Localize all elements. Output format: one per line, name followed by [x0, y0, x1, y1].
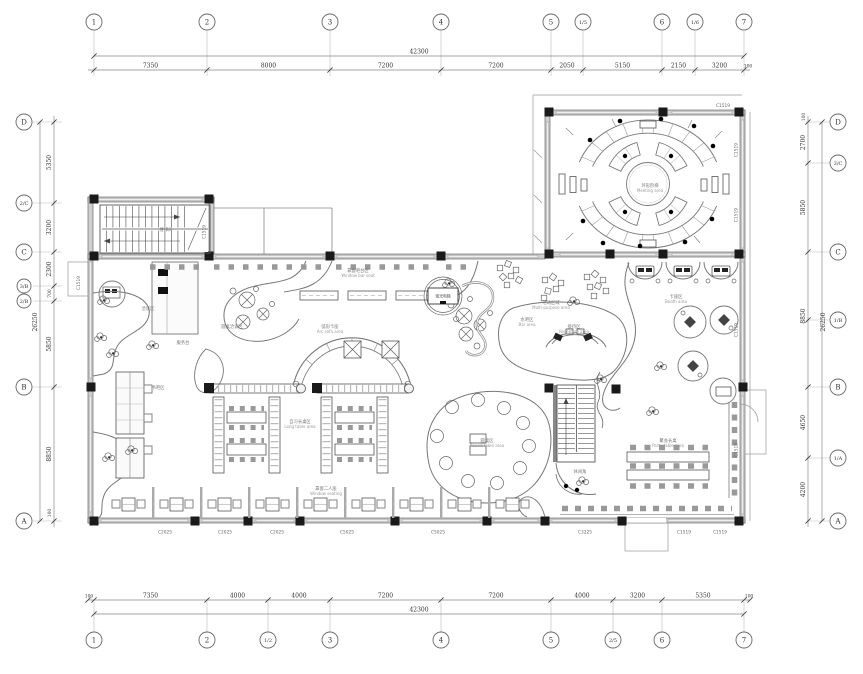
room-label: 书吧区 [152, 384, 166, 391]
dim-label: 3200 [712, 63, 727, 70]
svg-text:2: 2 [205, 19, 209, 27]
dim-label: 4000 [291, 593, 306, 600]
dim-total-bottom: 42300 [409, 607, 428, 614]
svg-text:D: D [21, 119, 27, 127]
floor-plan-page: 42300 7350 8000 7200 7200 2050 5150 2150… [0, 0, 863, 674]
svg-text:C: C [835, 249, 840, 257]
dim-label: 7200 [488, 63, 503, 70]
window-label: C1519 [734, 323, 740, 337]
svg-text:2/C: 2/C [20, 201, 29, 207]
dim-label: 2150 [671, 63, 686, 70]
window-label: C5025 [431, 530, 445, 536]
dimension-band-right: 26250 100 2700 5850 8850 4650 4200 D 3/C… [800, 113, 846, 529]
room-labels: 环形阶梯 Meeting area 靠窗吧台区 Window bar seat … [142, 182, 688, 496]
svg-text:B: B [21, 384, 26, 392]
grid-bubbles-right: D 3/C C 1/B B 1/A A [830, 114, 846, 529]
svg-text:6: 6 [660, 637, 665, 645]
window-label: C1519 [734, 143, 740, 157]
dim-label: 100 [744, 64, 753, 70]
svg-text:3/C: 3/C [834, 161, 843, 167]
svg-text:1/A: 1/A [834, 456, 843, 462]
right-vestibule [745, 390, 766, 454]
window-label: C1519 [734, 443, 740, 457]
dim-label: 7200 [378, 593, 393, 600]
dim-label: 2050 [559, 63, 574, 70]
svg-text:4: 4 [439, 19, 444, 27]
reception-area [99, 262, 198, 334]
svg-text:2/5: 2/5 [609, 638, 617, 644]
svg-text:7: 7 [742, 637, 746, 645]
svg-text:A: A [20, 518, 27, 526]
room-label: Booth area [665, 299, 687, 304]
window-label: C1519 [713, 530, 727, 536]
svg-text:1/B: 1/B [834, 318, 843, 324]
dim-label: 8000 [261, 63, 276, 70]
svg-text:D: D [835, 119, 841, 127]
svg-text:2/B: 2/B [20, 299, 29, 305]
dim-total-top: 42300 [409, 49, 428, 56]
dim-label: 7200 [488, 593, 503, 600]
circular-hall [559, 117, 729, 249]
dim-label: 100 [801, 113, 807, 122]
dim-label: 7350 [143, 593, 158, 600]
svg-text:C: C [21, 249, 26, 257]
stair-2 [553, 385, 596, 495]
dim-label: 7200 [378, 63, 393, 70]
room-label: Arc sofa area [317, 329, 344, 334]
dim-label: 2300 [46, 261, 53, 276]
book-bar [116, 372, 152, 478]
dim-label: 100 [745, 594, 754, 600]
booth-sofas [630, 266, 736, 283]
room-label: Window seating [310, 491, 342, 496]
dimension-band-left: 26250 5350 3200 2300 700 5850 8850 100 D… [16, 114, 62, 529]
room-label: Multi-purpose area [532, 305, 570, 310]
window-label: C1519 [677, 530, 691, 536]
dimension-band-top: 42300 7350 8000 7200 7200 2050 5150 2150… [86, 14, 752, 76]
dim-label: 4000 [574, 593, 589, 600]
entrance-vestibule [625, 523, 668, 551]
room-label: 楼梯间 [160, 226, 173, 233]
room-label: 服务台 [177, 339, 190, 346]
dim-label: 100 [85, 594, 94, 600]
arc-lounge [293, 338, 411, 387]
dim-label: 8850 [46, 446, 53, 461]
grid-bubbles-left: D 2/C C 3/B 2/B B A [16, 114, 32, 529]
svg-text:B: B [835, 384, 840, 392]
stair-1 [100, 205, 210, 253]
room-label: Reception area [559, 329, 590, 334]
dim-label: 4000 [230, 593, 245, 600]
svg-text:5: 5 [549, 19, 553, 27]
svg-text:4: 4 [439, 637, 444, 645]
window-bar [150, 267, 474, 300]
svg-text:1/5: 1/5 [579, 20, 587, 26]
dim-label: 2700 [800, 135, 807, 150]
svg-text:1: 1 [92, 19, 96, 27]
dim-label: 4200 [800, 482, 807, 497]
dim-total-right: 26250 [820, 312, 827, 331]
room-label: Round table area [470, 443, 505, 448]
stool-clusters [497, 260, 609, 300]
window-label: C1519 [202, 225, 208, 239]
svg-text:1: 1 [92, 637, 96, 645]
grid-bubbles-bottom: 1 2 1/2 3 4 5 2/5 6 7 [86, 632, 752, 648]
dim-label: 100 [47, 509, 53, 518]
room-label: 休闲角 [574, 468, 587, 475]
dim-label: 5850 [46, 336, 53, 351]
room-label: 观光电梯 [435, 294, 450, 299]
dim-label: 5350 [695, 593, 710, 600]
dim-label: 3200 [630, 593, 645, 600]
window-label: C2025 [158, 530, 172, 536]
dim-label: 3200 [46, 220, 53, 235]
booth-zone [597, 262, 738, 428]
dim-label: 5850 [800, 200, 807, 215]
crescent-room [499, 302, 627, 380]
room-label: Bar area [518, 322, 536, 327]
svg-text:3: 3 [328, 637, 332, 645]
window-label: C1519 [734, 208, 740, 222]
svg-text:A: A [834, 518, 841, 526]
svg-text:1/2: 1/2 [264, 638, 272, 644]
window-label: C5025 [340, 530, 354, 536]
svg-text:3/B: 3/B [20, 284, 29, 290]
dim-label: 5150 [615, 63, 630, 70]
room-label: Meeting area [637, 188, 664, 193]
dim-label: 700 [47, 289, 53, 298]
dim-total-left: 26250 [32, 312, 39, 331]
svg-text:3: 3 [328, 19, 332, 27]
floor-plan-canvas: 42300 7350 8000 7200 7200 2050 5150 2150… [0, 0, 863, 674]
window-label: C1519 [76, 276, 82, 290]
window-label: C3225 [578, 530, 592, 536]
dim-label: 7350 [143, 63, 158, 70]
dim-label: 8850 [800, 308, 807, 323]
room-label: 洽谈区 [142, 305, 156, 312]
dimension-band-bottom: 100 7350 4000 4000 7200 7200 4000 3200 5… [85, 593, 754, 649]
room-label: Long table area [284, 424, 316, 429]
room-label: Party table area [652, 443, 684, 448]
svg-text:2: 2 [205, 637, 209, 645]
window-label: C2025 [270, 530, 284, 536]
banquet-tables [560, 402, 735, 515]
svg-text:1/6: 1/6 [691, 20, 699, 26]
room-label: Window bar seat [341, 273, 375, 278]
dim-label: 4650 [800, 415, 807, 430]
svg-text:7: 7 [742, 19, 746, 27]
window-label: C1519 [716, 103, 730, 109]
dim-label: 5350 [46, 155, 53, 170]
grid-bubbles-top: 1 2 3 4 5 1/5 6 1/6 7 [86, 14, 752, 30]
svg-text:6: 6 [660, 19, 665, 27]
room-label: 圆桌洽谈区 [221, 323, 243, 330]
svg-text:5: 5 [549, 637, 553, 645]
window-label: C2025 [218, 530, 232, 536]
